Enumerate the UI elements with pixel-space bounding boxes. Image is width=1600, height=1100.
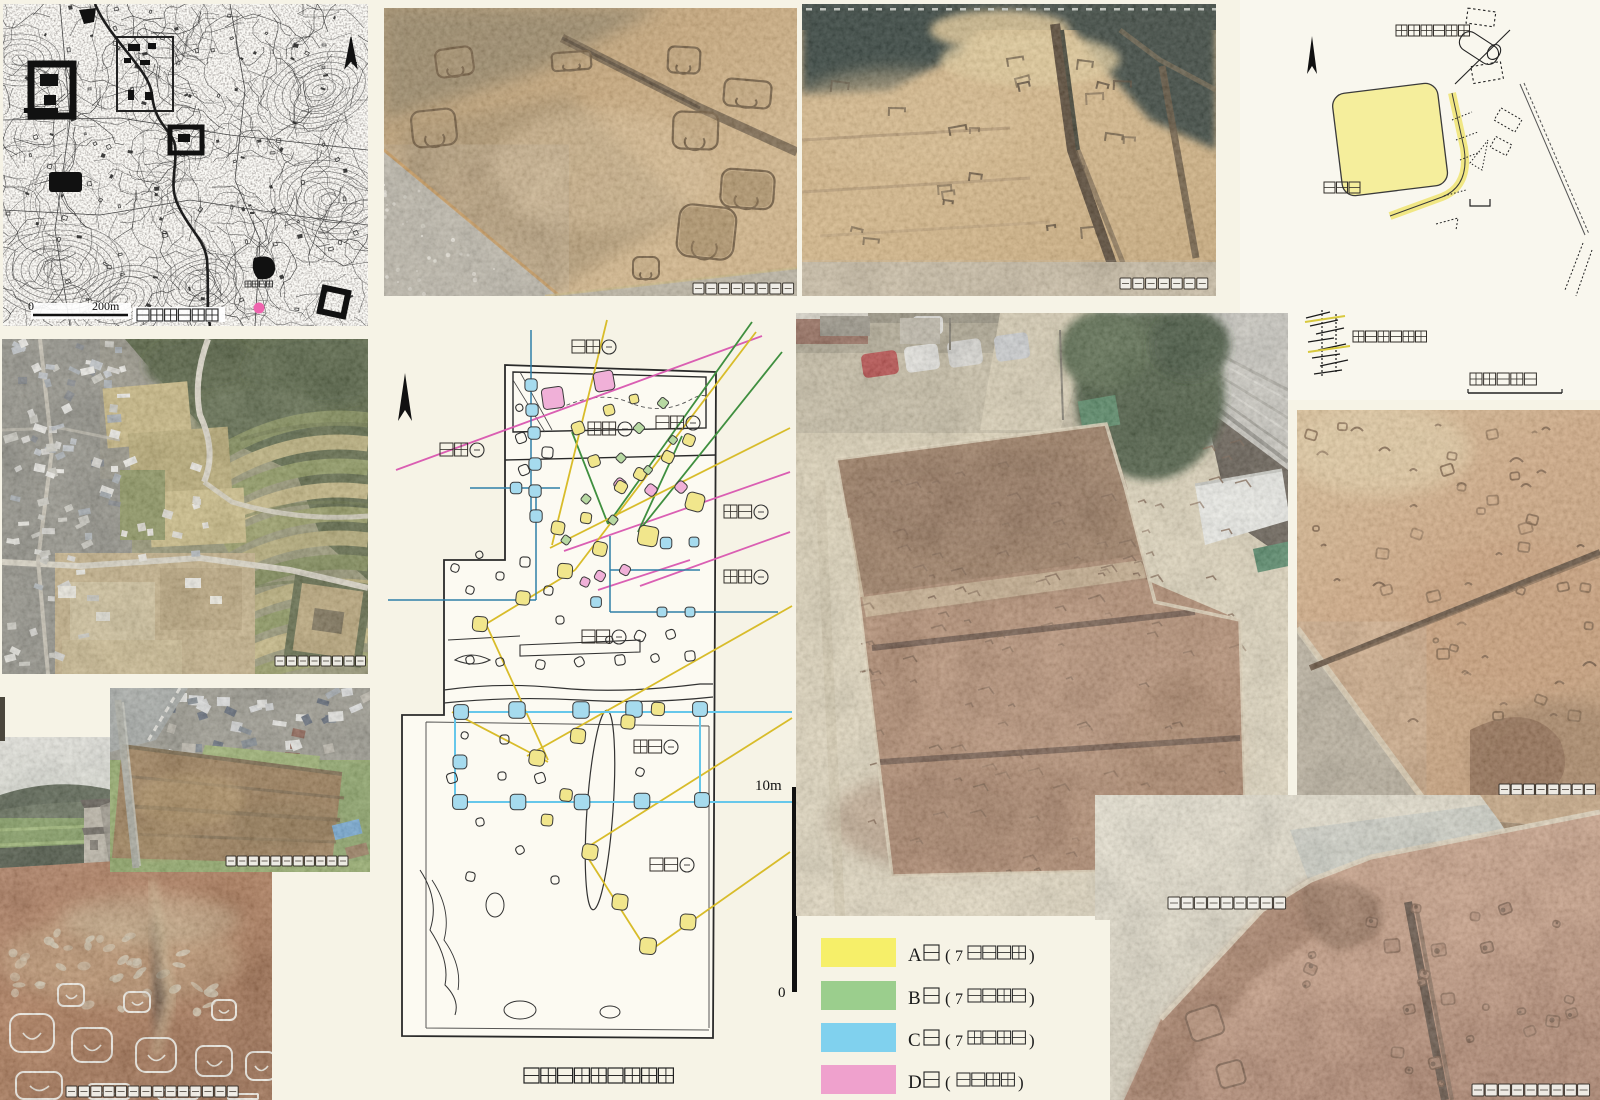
svg-text:): )	[1029, 946, 1035, 965]
svg-text:): )	[1018, 1073, 1024, 1092]
svg-text:0: 0	[778, 985, 786, 1001]
svg-text:7: 7	[955, 1033, 963, 1050]
svg-text:): )	[1029, 1031, 1035, 1050]
svg-text:7: 7	[955, 948, 963, 965]
svg-text:B: B	[908, 988, 921, 1009]
svg-text:0: 0	[28, 299, 34, 313]
svg-text:(: (	[945, 1073, 951, 1092]
svg-text:C: C	[908, 1030, 921, 1051]
svg-text:A: A	[908, 945, 922, 966]
svg-text:D: D	[908, 1072, 922, 1093]
svg-text:200m: 200m	[92, 299, 120, 313]
svg-text:(: (	[945, 946, 951, 965]
svg-text:10m: 10m	[755, 778, 782, 794]
svg-text:(: (	[945, 989, 951, 1008]
svg-text:(: (	[945, 1031, 951, 1050]
svg-text:): )	[1029, 989, 1035, 1008]
svg-text:7: 7	[955, 991, 963, 1008]
